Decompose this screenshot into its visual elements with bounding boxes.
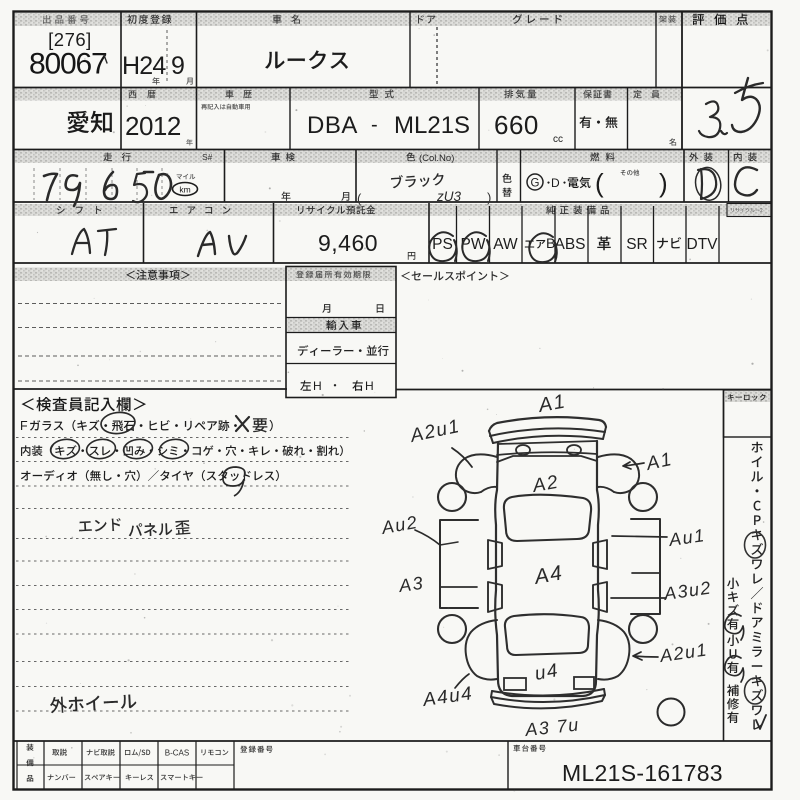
- svg-text:660: 660: [494, 110, 539, 140]
- svg-text:SR: SR: [626, 236, 648, 253]
- svg-text:80067: 80067: [29, 48, 107, 81]
- svg-text:(: (: [595, 168, 604, 198]
- svg-text:): ): [487, 190, 491, 205]
- svg-text:): ): [659, 168, 668, 198]
- svg-text:PS: PS: [432, 236, 453, 253]
- svg-text:km: km: [179, 185, 190, 195]
- svg-text:F: F: [20, 419, 28, 433]
- svg-text:(Col.No): (Col.No): [419, 153, 454, 164]
- svg-text:S#: S#: [202, 152, 213, 162]
- svg-text:cc: cc: [553, 134, 563, 145]
- svg-text:B-CAS: B-CAS: [165, 749, 189, 758]
- svg-text:-: -: [371, 114, 378, 136]
- svg-text:A3: A3: [397, 573, 426, 596]
- svg-text:DBA: DBA: [307, 112, 358, 139]
- svg-text:DTV: DTV: [687, 236, 719, 253]
- svg-text:H: H: [365, 379, 374, 393]
- svg-text:9,460: 9,460: [318, 230, 378, 256]
- svg-text:H: H: [313, 379, 322, 393]
- svg-text:9: 9: [171, 52, 185, 80]
- svg-text:ABS: ABS: [554, 236, 585, 253]
- svg-text:zU3: zU3: [436, 189, 461, 204]
- svg-text:ML21S-161783: ML21S-161783: [562, 760, 723, 786]
- svg-text:(: (: [357, 191, 362, 206]
- svg-text:2012: 2012: [125, 111, 181, 141]
- svg-text:AW: AW: [493, 236, 518, 253]
- svg-text:ML21S: ML21S: [394, 112, 470, 139]
- svg-text:u4: u4: [533, 660, 560, 685]
- svg-text:H24: H24: [122, 52, 166, 80]
- svg-text:G: G: [531, 178, 540, 190]
- svg-text:D: D: [551, 176, 560, 190]
